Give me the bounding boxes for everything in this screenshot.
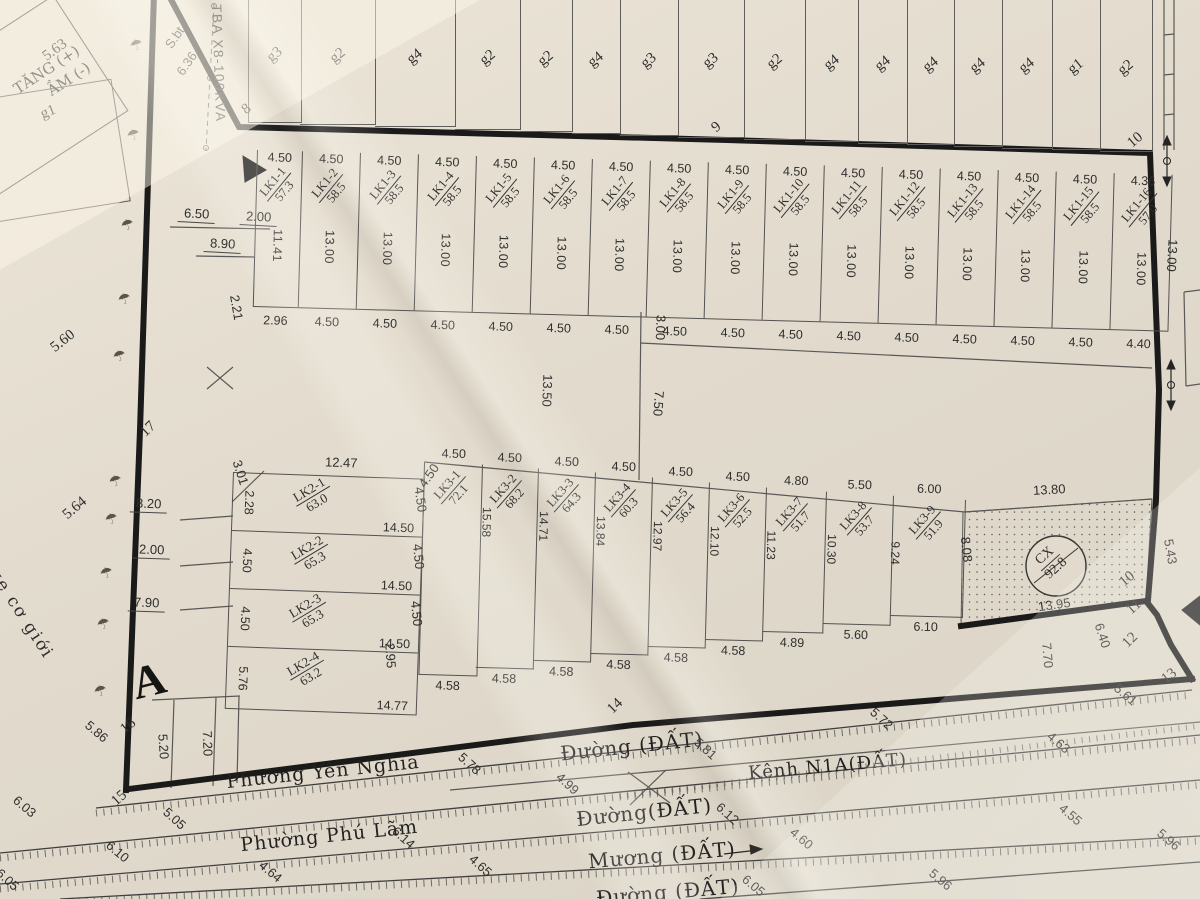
- dimension-label: 13.00: [495, 235, 510, 269]
- dimension-label: 4.50: [414, 317, 471, 333]
- dimension-label: 4.50: [762, 327, 819, 343]
- dim-label: 12.47: [325, 454, 358, 470]
- farm-lot-label: g4: [820, 52, 842, 75]
- lot-LK1-8: 4.50 LK1-858.5 13.00 4.50: [647, 161, 709, 319]
- dimension-label: 4.50: [709, 469, 766, 484]
- lot-label: LK3-751.7: [772, 494, 818, 541]
- dim-label: 2.95: [382, 642, 399, 668]
- dimension-label: 4.50: [994, 333, 1051, 349]
- dim-label: 13.80: [1033, 481, 1066, 498]
- dimension-label: 11.41: [270, 229, 285, 262]
- dimension-label: 4.50: [878, 330, 935, 346]
- dimension-label: 4.58: [533, 664, 590, 679]
- dimension-label: 14.71: [536, 511, 551, 541]
- farm-lot-label: g4: [919, 54, 941, 77]
- farm-lot-label: g4: [585, 49, 607, 72]
- farm-lot: g4: [858, 0, 908, 144]
- dimension-label: 5.50: [826, 477, 893, 493]
- farm-lot-label: g3: [638, 49, 660, 72]
- lot-label: LK1-1558.5: [1059, 183, 1109, 235]
- dimension-label: 4.58: [475, 671, 532, 686]
- farm-lot-label: g1: [1065, 56, 1087, 79]
- dimension-label: 4.50: [356, 316, 413, 332]
- lot-LK1-10: 4.50 LK1-1058.5 13.00 4.50: [763, 164, 825, 322]
- lot-label: LK1-758.5: [598, 173, 644, 220]
- dimension-label: 13.00: [379, 231, 394, 265]
- dimension-label: 13.00: [321, 230, 336, 264]
- dim-label: 7.90: [128, 594, 166, 612]
- lot-LK3-2: 4.50 LK3-268.2 15.58 4.58: [476, 467, 539, 669]
- dimension-label: 13.00: [1133, 252, 1148, 286]
- lot-label: LK2-265.3: [287, 532, 335, 577]
- dim-label: 3.00: [653, 315, 669, 341]
- lk1-block: 4.50 LK1-157.3 11.41 2.96 4.50 LK1-258.5…: [253, 150, 1173, 332]
- cadastral-plan-photo: TĂNG (+) ẦM (-) g1 TBA X8-100KVA xe cơ g…: [0, 0, 1200, 899]
- dimension-label: 10.30: [824, 534, 839, 564]
- lot-label: LK1-958.5: [713, 176, 759, 223]
- lot-LK1-3: 4.50 LK1-358.5 13.00 4.50: [357, 153, 419, 311]
- lot-label: LK2-365.3: [285, 590, 333, 635]
- dimension-label: 13.00: [1075, 250, 1090, 284]
- lot-LK3-3: 4.50 LK3-364.3 14.71 4.58: [533, 471, 596, 662]
- dim-label: 7.50: [650, 390, 667, 416]
- dim-label: 4.50: [408, 600, 426, 627]
- dimension-label: 4.50: [936, 331, 993, 347]
- dimension-label: 13.00: [553, 236, 568, 270]
- lot-LK1-7: 4.50 LK1-758.5 13.00 4.50: [589, 159, 651, 317]
- dimension-label: 13.00: [1017, 249, 1032, 283]
- farm-lot: g2: [455, 0, 521, 130]
- farm-lot-label: g4: [871, 53, 893, 76]
- lot-LK1-1: 4.50 LK1-157.3 11.41 2.96: [253, 150, 303, 307]
- farm-lot-label: g2: [763, 51, 785, 74]
- dimension-label: 4.50: [425, 446, 482, 461]
- lk2-block: 2.28 LK2-163.0 14.50 4.50 LK2-265.3 14.5…: [225, 472, 425, 716]
- dimension-label: 6.10: [889, 619, 961, 635]
- lot-LK1-4: 4.50 LK1-458.5 13.00 4.50: [415, 154, 477, 312]
- lot-label: LK1-458.5: [424, 168, 470, 215]
- lot-LK3-8: 5.50 LK3-853.7 10.30 5.60: [823, 494, 894, 626]
- dimension-label: 12.10: [707, 526, 722, 556]
- lot-LK1-11: 4.50 LK1-1158.5 13.00 4.50: [821, 165, 883, 323]
- lot-LK3-6: 4.50 LK3-652.5 12.10 4.58: [705, 486, 767, 641]
- dim-label: 2.00: [240, 208, 278, 227]
- lot-LK3-7: 4.80 LK3-751.7 11.23 4.89: [762, 490, 827, 634]
- dim-label: 13.50: [539, 374, 555, 407]
- lot-label: LK1-1358.5: [943, 180, 993, 232]
- dimension-label: 4.58: [705, 643, 762, 658]
- dimension-label: 4.89: [762, 635, 822, 651]
- farm-lot: g4: [954, 0, 1003, 147]
- dimension-label: 4.50: [588, 322, 645, 338]
- dimension-label: 4.80: [766, 473, 826, 489]
- farm-lot: g3: [248, 0, 302, 123]
- farm-lot: g2: [300, 0, 376, 125]
- lot-label: LK1-1258.5: [885, 178, 935, 230]
- dimension-label: 4.50: [538, 454, 595, 469]
- farm-lot: g4: [805, 0, 859, 142]
- dimension-label: 13.00: [611, 238, 626, 272]
- lot-LK3-5: 4.50 LK3-556.4 12.97 4.58: [648, 481, 710, 648]
- dim-label: 8.08: [958, 536, 976, 563]
- edge-arrow-marker: [1182, 596, 1200, 625]
- dimension-label: 6.00: [893, 481, 965, 497]
- farm-lot-label: g2: [535, 48, 557, 71]
- dimension-label: 13.00: [959, 247, 974, 281]
- dim-label: 2.00: [133, 541, 171, 559]
- dim-label: 5.20: [155, 733, 172, 759]
- dimension-label: 4.58: [590, 657, 647, 672]
- lot-LK3-4: 4.50 LK3-460.3 13.84 4.58: [590, 476, 653, 655]
- dimension-label: 4.50: [298, 314, 355, 330]
- dimension-label: 4.50: [652, 464, 709, 479]
- farm-lot: g3: [620, 0, 679, 136]
- lot-LK3-9: 6.00 LK3-951.9 9.24 6.10: [890, 498, 966, 618]
- dimension-label: 4.50: [240, 548, 255, 573]
- dimension-label: 13.00: [669, 239, 684, 273]
- lot-label: LK1-1158.5: [828, 177, 877, 228]
- dimension-label: 14.50: [381, 578, 413, 593]
- farm-lot: g4: [572, 0, 621, 134]
- dimension-label: 9.24: [888, 541, 903, 565]
- farm-lot-label: g2: [1115, 57, 1137, 80]
- lot-LK2-1: 2.28 LK2-163.0 14.50: [232, 473, 424, 538]
- lot-LK1-6: 4.50 LK1-658.5 13.00 4.50: [531, 158, 593, 316]
- lot-LK1-16: 4.36 LK1-1657.0 13.00 4.40: [1110, 173, 1172, 331]
- dimension-label: 13.00: [901, 246, 916, 280]
- dimension-label: 4.50: [704, 325, 761, 341]
- dim-label: 4.50: [410, 543, 428, 570]
- lot-LK1-14: 4.50 LK1-1458.5 13.00 4.50: [995, 170, 1057, 328]
- dimension-label: 13.00: [843, 244, 858, 278]
- dimension-label: 4.50: [820, 328, 877, 344]
- lot-LK1-9: 4.50 LK1-958.5 13.00 4.50: [705, 162, 767, 320]
- dimension-label: 15.58: [479, 507, 494, 537]
- farm-lot: g3: [678, 0, 745, 138]
- dimension-label: 13.00: [785, 242, 800, 276]
- lot-label: LK1-258.5: [308, 165, 354, 212]
- lot-label: LK1-1657.0: [1117, 184, 1167, 236]
- dim-label: 8.90: [204, 235, 242, 254]
- dim-label: 8.20: [130, 495, 168, 513]
- lot-label: LK1-658.5: [540, 171, 586, 218]
- dimension-label: 12.97: [650, 521, 665, 551]
- dimension-label: 5.76: [236, 666, 251, 691]
- dimension-label: 2.96: [253, 313, 297, 328]
- lot-label: LK1-558.5: [482, 169, 528, 216]
- farm-lot-label: g4: [1016, 55, 1038, 78]
- farm-lot-label: g2: [326, 44, 348, 67]
- lot-LK1-2: 4.50 LK1-258.5 13.00 4.50: [299, 151, 361, 309]
- dimension-label: 2.28: [242, 490, 257, 515]
- lot-label: LK1-858.5: [655, 174, 701, 221]
- dim-label: 7.70: [1039, 642, 1056, 669]
- lot-LK1-12: 4.50 LK1-1258.5 13.00 4.50: [879, 167, 941, 325]
- dimension-label: 4.50: [1052, 335, 1109, 351]
- dimension-label: 11.23: [764, 530, 779, 559]
- lot-LK1-13: 4.50 LK1-1358.5 13.00 4.50: [937, 169, 999, 327]
- dimension-label: 13.00: [727, 241, 742, 275]
- dimension-label: 4.40: [1110, 336, 1167, 352]
- dimension-label: 13.00: [437, 233, 452, 267]
- lot-label: LK3-951.9: [905, 502, 951, 549]
- dim-label: 7.20: [200, 731, 216, 757]
- farm-lot: g2: [1100, 0, 1153, 152]
- dim-label: 6.50: [178, 205, 216, 224]
- dim-label: 13.00: [1164, 239, 1181, 272]
- dimension-label: 4.50: [238, 606, 253, 631]
- lot-LK1-15: 4.50 LK1-1558.5 13.00 4.50: [1052, 172, 1114, 330]
- lot-label: LK2-463.2: [283, 648, 331, 693]
- lot-label: LK1-358.5: [366, 166, 412, 213]
- farm-lot-label: g3: [700, 50, 722, 73]
- farm-lot-label: g3: [264, 44, 286, 67]
- lot-LK3-1: 4.50 LK3-172.1 4.58: [418, 463, 483, 676]
- farm-lot: g4: [1002, 0, 1053, 149]
- farm-lot: g4: [907, 0, 955, 145]
- lot-label: LK1-1458.5: [1001, 181, 1051, 233]
- dimension-label: 4.50: [530, 320, 587, 336]
- farm-lot: g2: [744, 0, 806, 140]
- farm-lot: g1: [1052, 0, 1101, 150]
- dimension-label: 14.50: [383, 520, 415, 535]
- dimension-label: 5.60: [822, 627, 889, 643]
- lot-label: LK1-157.3: [256, 163, 302, 210]
- farm-lot-label: g4: [967, 54, 989, 77]
- dimension-label: 4.58: [419, 678, 476, 693]
- dimension-label: 4.58: [647, 650, 704, 665]
- dimension-label: 4.50: [595, 459, 652, 474]
- farm-lot-label: g4: [404, 46, 426, 69]
- farm-lot: g4: [375, 0, 456, 127]
- lot-label: LK1-1058.5: [769, 175, 819, 227]
- farm-lot-label: g2: [476, 47, 498, 70]
- dimension-label: 13.84: [593, 516, 608, 546]
- dimension-label: 4.50: [481, 450, 538, 465]
- lot-LK1-5: 4.50 LK1-558.5 13.00 4.50: [473, 156, 535, 314]
- lot-label: LK2-163.0: [289, 474, 337, 519]
- dimension-label: 14.77: [376, 698, 408, 713]
- lot-LK2-2: 4.50 LK2-265.3 14.50: [230, 531, 422, 596]
- lot-label: LK3-853.7: [836, 498, 882, 545]
- dimension-label: 4.50: [472, 319, 529, 335]
- farm-lot: g2: [520, 0, 573, 132]
